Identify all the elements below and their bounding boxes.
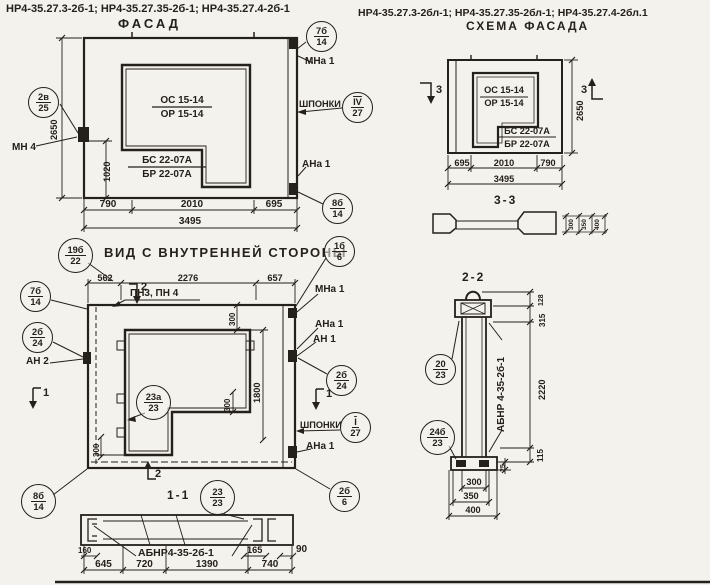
scheme-dim-695: 695 — [450, 159, 474, 168]
scheme-dim-height: 2650 — [576, 101, 585, 121]
callout-I-27: I 27 — [340, 412, 371, 443]
callout-8b-14-facade: 8б 14 — [322, 193, 353, 224]
inner-section1-left: 1 — [43, 388, 49, 399]
inner-label-ana1-bot: АНа 1 — [306, 442, 334, 452]
callout-detail: 20 — [433, 359, 447, 370]
callout-detail: 7б — [28, 286, 43, 297]
section33-dim-400: 400 — [595, 219, 602, 230]
inner-dim-1800: 1800 — [253, 383, 262, 403]
callout-2v-25: 2в 25 — [28, 87, 59, 118]
callout-sheet: 23 — [433, 370, 447, 380]
facade-dim-height: 2650 — [50, 120, 59, 140]
section33-dim-300: 300 — [569, 219, 576, 230]
section11-dim-645: 645 — [84, 560, 123, 570]
section22-profile — [451, 292, 497, 470]
callout-sheet: 14 — [314, 37, 328, 47]
callout-2b-6: 2б 6 — [329, 481, 360, 512]
section22-dim-300: 300 — [462, 478, 486, 487]
callout-sheet: 6 — [335, 252, 344, 262]
facade-dim-2010: 2010 — [170, 200, 214, 210]
scheme-dim-2010: 2010 — [482, 159, 526, 168]
facade-label-shponki: ШПОНКИ — [299, 100, 341, 109]
facade-mark-os: ОС 15-14 — [152, 96, 212, 106]
facade-title: ФАСАД — [118, 17, 181, 30]
inner-dim-corner300: 300 — [224, 399, 232, 412]
section22-dim-25: 25 — [500, 464, 507, 472]
section22-dim-128: 128 — [538, 294, 545, 306]
callout-2b-24-right: 2б 24 — [326, 365, 357, 396]
scheme-section3-left: 3 — [436, 85, 442, 96]
callout-sheet: 23 — [430, 438, 444, 448]
callout-19b-22: 19б 22 — [58, 238, 93, 273]
section22-dim-315: 315 — [539, 314, 547, 327]
facade-dim-695: 695 — [254, 200, 294, 210]
section22-label-abnr: АБНР 4-35-2б-1 — [497, 357, 507, 432]
callout-sheet: 6 — [340, 497, 349, 507]
inner-section2-bottom: 2 — [155, 469, 161, 480]
callout-23a-23: 23а 23 — [136, 385, 171, 420]
callout-sheet: 22 — [68, 256, 82, 266]
section22-leaders — [449, 321, 502, 459]
facade-label-mna1: МНа 1 — [305, 57, 334, 67]
callout-2b-24-left: 2б 24 — [22, 322, 53, 353]
inner-dim-2276: 2276 — [168, 274, 208, 283]
callout-detail: 2б — [337, 486, 352, 497]
section33-title: 3-3 — [494, 194, 517, 206]
section11-dim-720: 720 — [123, 560, 166, 570]
callout-8b-14-bottom: 8б 14 — [21, 484, 56, 519]
callout-sheet: 27 — [350, 108, 364, 118]
blueprint-sheet: НР4-35.27.3-2б-1; НР4-35.27.35-2б-1; НР4… — [0, 0, 710, 585]
section11-profile — [81, 515, 293, 545]
scheme-dim-790: 790 — [535, 159, 561, 168]
inner-label-shponki: ШПОНКИ — [300, 421, 342, 430]
callout-7b-14: 7б 14 — [306, 21, 337, 52]
section22-dim-2220: 2220 — [538, 380, 547, 400]
callout-20-23: 20 23 — [425, 354, 456, 385]
scheme-title: СХЕМА ФАСАДА — [466, 20, 589, 32]
section11-dim-1390: 1390 — [166, 560, 248, 570]
inner-section2-top: 2 — [141, 282, 147, 293]
section22-dim-350: 350 — [453, 492, 489, 501]
scheme-mark-bs: БС 22-07А — [496, 127, 558, 136]
inner-label-an2: АН 2 — [26, 357, 49, 367]
callout-detail: 23а — [144, 392, 164, 403]
callout-sheet: 23 — [210, 498, 224, 508]
scheme-mark-os: ОС 15-14 — [478, 86, 530, 95]
callout-sheet: 25 — [36, 103, 50, 113]
callout-sheet: 24 — [334, 381, 348, 391]
callout-7b-14-inner: 7б 14 — [20, 281, 51, 312]
callout-sheet: 27 — [348, 428, 362, 438]
callout-detail: 2б — [30, 327, 45, 338]
drawing-codes-left: НР4-35.27.3-2б-1; НР4-35.27.35-2б-1; НР4… — [6, 4, 290, 15]
section11-dim-740: 740 — [248, 560, 292, 570]
inner-label-pn: ПН3, ПН 4 — [130, 289, 178, 299]
facade-dim-1020: 1020 — [103, 162, 112, 182]
callout-detail: 23 — [210, 487, 224, 498]
inner-section-markers — [29, 284, 324, 479]
section11-dim-165: 165 — [247, 546, 262, 555]
section33-profile — [433, 212, 556, 234]
callout-sheet: 24 — [30, 338, 44, 348]
inner-leaders — [50, 258, 340, 495]
callout-IV-27: IV 27 — [342, 92, 373, 123]
callout-detail: I — [352, 417, 359, 428]
scheme-mark-br: БР 22-07А — [496, 140, 558, 149]
callout-sheet: 14 — [31, 502, 45, 512]
inner-title: ВИД С ВНУТРЕННЕЙ СТОРОНЫ — [104, 246, 347, 259]
callout-sheet: 23 — [146, 403, 160, 413]
section11-title: 1-1 — [167, 489, 190, 501]
scheme-mark-or: ОР 15-14 — [478, 99, 530, 108]
inner-label-ana1-top: АНа 1 — [315, 320, 343, 330]
callout-24b-23: 24б 23 — [420, 420, 455, 455]
inner-dim-left300: 300 — [93, 444, 101, 457]
inner-dim-562: 562 — [90, 274, 120, 283]
inner-label-mna1: МНа 1 — [315, 285, 344, 295]
facade-mark-br: БР 22-07А — [127, 170, 207, 180]
callout-23-23: 23 23 — [200, 480, 235, 515]
section11-dim-90: 90 — [296, 545, 307, 555]
facade-label-ana1: АНа 1 — [302, 160, 330, 170]
callout-detail: 2б — [334, 370, 349, 381]
facade-mark-bs: БС 22-07А — [127, 156, 207, 166]
callout-sheet: 14 — [28, 297, 42, 307]
callout-detail: 1б — [332, 241, 347, 252]
section22-dim-115: 115 — [537, 449, 545, 462]
drawing-codes-right: НР4-35.27.3-2бл-1; НР4-35.27.35-2бл-1; Н… — [358, 8, 648, 19]
callout-1b-6: 1б 6 — [324, 236, 355, 267]
facade-dim-790: 790 — [88, 200, 128, 210]
inner-label-an1: АН 1 — [313, 335, 336, 345]
scheme-dim-3495: 3495 — [482, 175, 526, 184]
callout-detail: 7б — [314, 26, 329, 37]
section11-dim-160: 160 — [78, 547, 91, 555]
callout-detail: 8б — [330, 198, 345, 209]
inner-dim-657: 657 — [260, 274, 290, 283]
facade-dim-3495: 3495 — [168, 217, 212, 227]
callout-detail: 19б — [65, 245, 85, 256]
facade-mark-or: ОР 15-14 — [152, 110, 212, 120]
callout-detail: 8б — [31, 491, 46, 502]
scheme-section3-right: 3 — [581, 85, 587, 96]
callout-detail: IV — [351, 97, 364, 108]
facade-label-mn4: МН 4 — [12, 143, 36, 153]
callout-detail: 2в — [36, 92, 51, 103]
inner-dim-top300: 300 — [229, 313, 237, 326]
callout-sheet: 14 — [330, 209, 344, 219]
section22-dim-400: 400 — [449, 506, 497, 515]
callout-detail: 24б — [427, 427, 447, 438]
section22-title: 2-2 — [462, 271, 485, 283]
section11-label-abnr: АБНР4-35-2б-1 — [138, 548, 214, 559]
section33-dim-350: 350 — [582, 219, 589, 230]
